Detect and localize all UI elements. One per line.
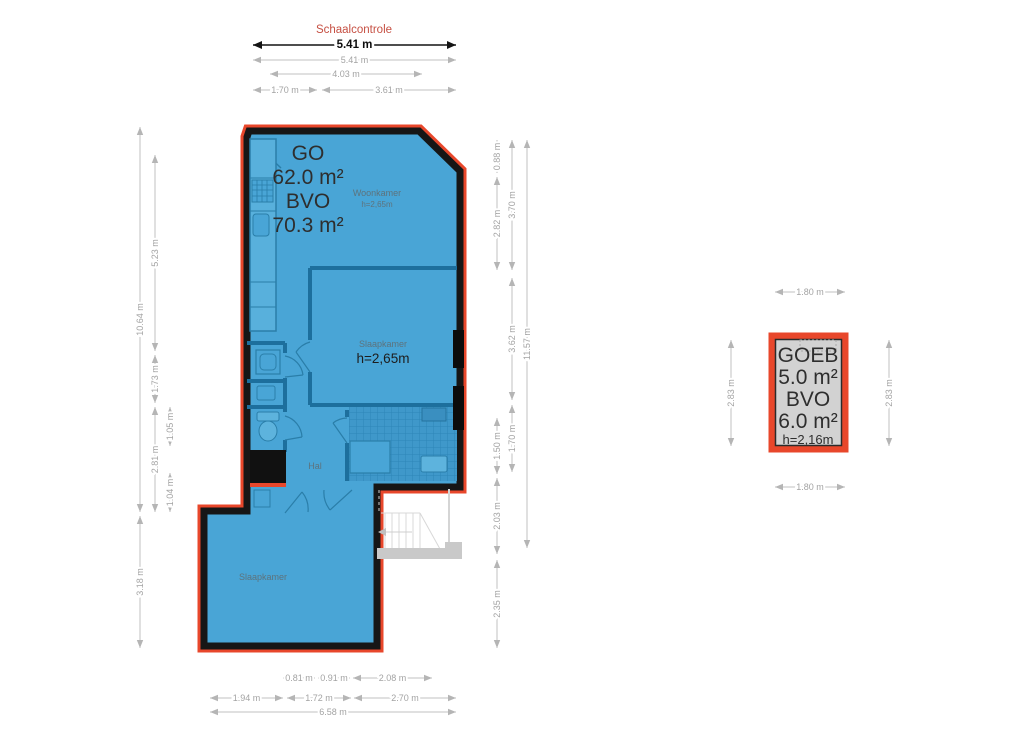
dimension-label: 6.58 m [319, 707, 347, 717]
go-label: GO [292, 142, 325, 165]
scale-bar: 5.41 m [253, 39, 456, 51]
stair-wall [377, 548, 451, 559]
dimension-label: 1.70 m [507, 425, 517, 453]
sink-icon [253, 214, 269, 236]
dimension-label: 5.23 m [150, 239, 160, 267]
dimension: 3.18 m [135, 516, 145, 648]
dimension: 1.72 m [287, 693, 351, 703]
dimension: 1.70 m [507, 405, 517, 472]
dimension-label: 3.62 m [507, 325, 517, 353]
dimension-label: 1.72 m [305, 693, 333, 703]
dimension: 2.83 m [884, 340, 894, 446]
dimension-label: 10.64 m [135, 303, 145, 336]
dimension-label: 1.50 m [492, 432, 502, 460]
dimension: 2.81 m [150, 407, 160, 512]
dimension-label: 2.70 m [391, 693, 419, 703]
dimension-label: 3.18 m [135, 568, 145, 596]
dimension-label: 1.04 m [165, 479, 175, 507]
cabinet-icon [257, 386, 275, 400]
dimension-label: 1.80 m [796, 482, 824, 492]
shower-tray [350, 441, 390, 473]
dimension: 3.70 m [507, 140, 517, 270]
floorplan-page: Schaalcontrole [0, 0, 1024, 724]
dimension-label: 2.81 m [150, 446, 160, 474]
dimension: 1.80 m [775, 482, 845, 492]
dimension-label: 2.35 m [492, 590, 502, 618]
dimension-label: 2.08 m [379, 673, 407, 683]
main-floorplan: GO 62.0 m² BVO 70.3 m² Woonkamer h=2,65m… [204, 131, 464, 646]
floorplan-drawing: Schaalcontrole [0, 0, 1024, 724]
dimension-label: 4.03 m [332, 69, 360, 79]
dimension-label: 0.81 m [285, 673, 313, 683]
dimension: 0.91 m [318, 673, 350, 683]
dimension: 1.50 m [492, 418, 502, 474]
stair-treads [381, 513, 440, 549]
room-label-hal: Hal [308, 461, 322, 471]
dimension-label: 0.88 m [492, 143, 502, 171]
dimension: 3.62 m [507, 278, 517, 400]
dimension-label: 5.41 m [337, 39, 373, 51]
dimension-label: 1.94 m [233, 693, 261, 703]
dimension: 1.05 m [165, 407, 175, 446]
dimension: 3.61 m [322, 85, 456, 95]
storage-ceiling-height: h=2,16m [783, 432, 834, 447]
goeb-area: 5.0 m² [778, 366, 838, 389]
scale-control-title: Schaalcontrole [316, 24, 392, 36]
dimension: 4.03 m [270, 69, 422, 79]
dimension: 2.08 m [353, 673, 432, 683]
dimension: 10.64 m [135, 127, 145, 512]
room-label-slaapkamer-2: Slaapkamer [239, 572, 287, 582]
goeb-label: GOEB [778, 344, 839, 367]
dimension: 1.73 m [150, 355, 160, 403]
stairwell [377, 489, 462, 559]
go-area: 62.0 m² [272, 166, 343, 189]
dimension: 0.88 m [492, 140, 502, 173]
room-label-slaapkamer-1: Slaapkamer [359, 339, 407, 349]
stair-wall [445, 542, 462, 559]
window [453, 386, 464, 430]
dimension-label: 5.41 m [341, 55, 369, 65]
dimension: 1.70 m [253, 85, 317, 95]
dimension-label: 1.73 m [150, 365, 160, 393]
dimension: 2.83 m [726, 340, 736, 446]
window [453, 330, 464, 368]
shower-unit [422, 408, 446, 421]
dimension: 0.81 m [283, 673, 315, 683]
room-height-woonkamer: h=2,65m [361, 200, 393, 209]
bvo-area: 70.3 m² [272, 214, 343, 237]
dimension: 1.80 m [775, 287, 845, 297]
dimension: 2.70 m [354, 693, 456, 703]
room-height-slaapkamer-1: h=2,65m [357, 351, 410, 366]
washer-icon [256, 350, 280, 374]
dimension-label: 2.82 m [492, 210, 502, 238]
dimension: 2.35 m [492, 560, 502, 648]
dimension-label: 2.83 m [884, 379, 894, 407]
dimension-label: 3.61 m [375, 85, 403, 95]
room-label-woonkamer: Woonkamer [353, 188, 401, 198]
dimension-label: 1.05 m [165, 413, 175, 441]
dimension: 2.03 m [492, 478, 502, 554]
dimension-label: 1.80 m [796, 287, 824, 297]
dimension: 11.57 m [522, 140, 532, 548]
dimension-label: 0.91 m [320, 673, 348, 683]
dimension-label: 2.83 m [726, 379, 736, 407]
dimension-label: 1.70 m [271, 85, 299, 95]
dimension: 5.41 m [253, 55, 456, 65]
storage-bvo-label: BVO [786, 388, 830, 411]
dimension-label: 3.70 m [507, 191, 517, 219]
washbasin-icon [421, 456, 447, 472]
stove-icon [252, 180, 273, 202]
dimension-label: 2.03 m [492, 502, 502, 530]
dimension: 2.82 m [492, 177, 502, 270]
toilet-icon [257, 412, 279, 441]
dimension-label: 11.57 m [522, 328, 532, 360]
dimension: 1.94 m [210, 693, 283, 703]
dimension: 5.23 m [150, 155, 160, 351]
shaft [250, 450, 286, 487]
bvo-label: BVO [286, 190, 330, 213]
storage-floorplan: GOEB 5.0 m² BVO 6.0 m² h=2,16m [772, 336, 845, 449]
dimension: 6.58 m [210, 707, 456, 717]
dimension: 1.04 m [165, 473, 175, 512]
storage-bvo-area: 6.0 m² [778, 410, 838, 433]
boiler-icon [254, 490, 270, 507]
